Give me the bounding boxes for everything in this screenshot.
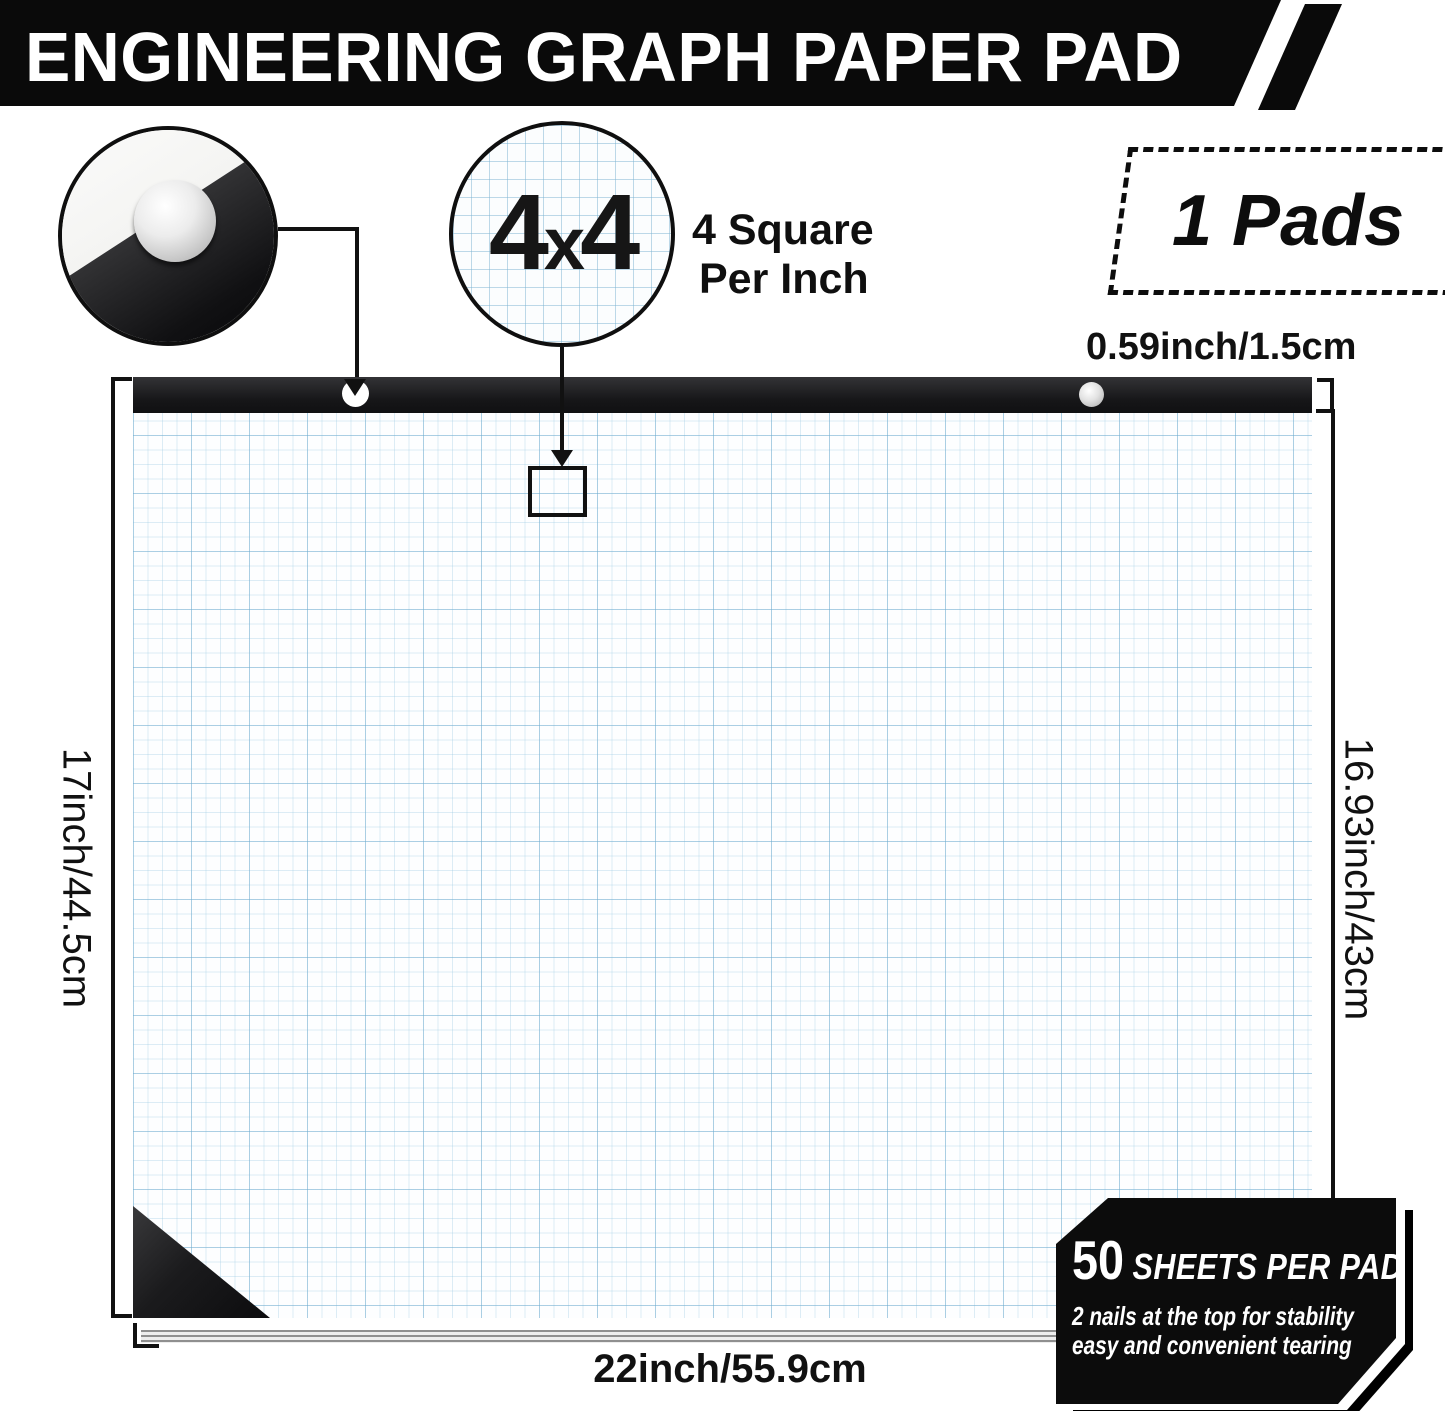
bottom-bracket-foot [133,1344,159,1348]
dim-label-bottom: 22inch/55.9cm [593,1347,867,1392]
sheets-badge-note-line1: 2 nails at the top for stability [1072,1302,1331,1331]
connector-line-square [560,347,564,451]
page-title: ENGINEERING GRAPH PAPER PAD [25,4,1182,110]
grid-scale-digit: 4 [489,171,544,292]
connector-line-vertical [355,227,359,379]
left-bracket-line [111,377,115,1318]
pads-count-box: 1 Pads [1108,147,1445,295]
connector-line-horizontal [278,227,359,231]
grid-magnifier-circle: 4x4 [449,121,675,347]
dim-label-left: 17inch/44.5cm [54,748,99,1008]
pad-header-strip [133,377,1312,413]
grid-caption: 4 Square Per Inch [692,206,874,303]
inch-square-outline [528,466,587,517]
down-arrow-icon [551,450,573,467]
grid-caption-line1: 4 Square [692,206,874,255]
sheets-count-suffix: SHEETS PER PAD [1133,1246,1404,1288]
product-infographic: ENGINEERING GRAPH PAPER PAD 4x4 4 Square… [0,0,1445,1411]
right-nail-icon [1079,382,1104,407]
title-banner: ENGINEERING GRAPH PAPER PAD [0,0,1281,106]
sheets-badge-note-line2: easy and convenient tearing [1072,1331,1331,1360]
left-bracket-bottom-tick [111,1314,132,1318]
header-height-label: 0.59inch/1.5cm [1086,326,1356,369]
grid-scale-digit: 4 [580,171,635,292]
sheets-count: 50 [1072,1236,1124,1286]
dim-label-right: 16.93inch/43cm [1336,738,1381,1020]
pads-count-label: 1 Pads [1172,180,1424,262]
sheets-badge-headline: 50 SHEETS PER PAD [1072,1236,1347,1288]
graph-paper-sheet [133,377,1312,1318]
nail-magnifier-circle [58,126,278,346]
grid-caption-line2: Per Inch [692,255,874,304]
right-bracket-line [1331,409,1335,1318]
sheets-badge-note: 2 nails at the top for stability easy an… [1072,1302,1331,1360]
grid-scale-x: x [544,202,580,285]
down-arrow-icon [344,379,366,396]
header-bracket-line [1330,378,1334,413]
grid-scale-label: 4x4 [489,169,635,300]
nail-disc-icon [134,180,216,262]
left-bracket-top-tick [111,377,132,381]
sheets-badge: 50 SHEETS PER PAD 2 nails at the top for… [1056,1198,1396,1404]
